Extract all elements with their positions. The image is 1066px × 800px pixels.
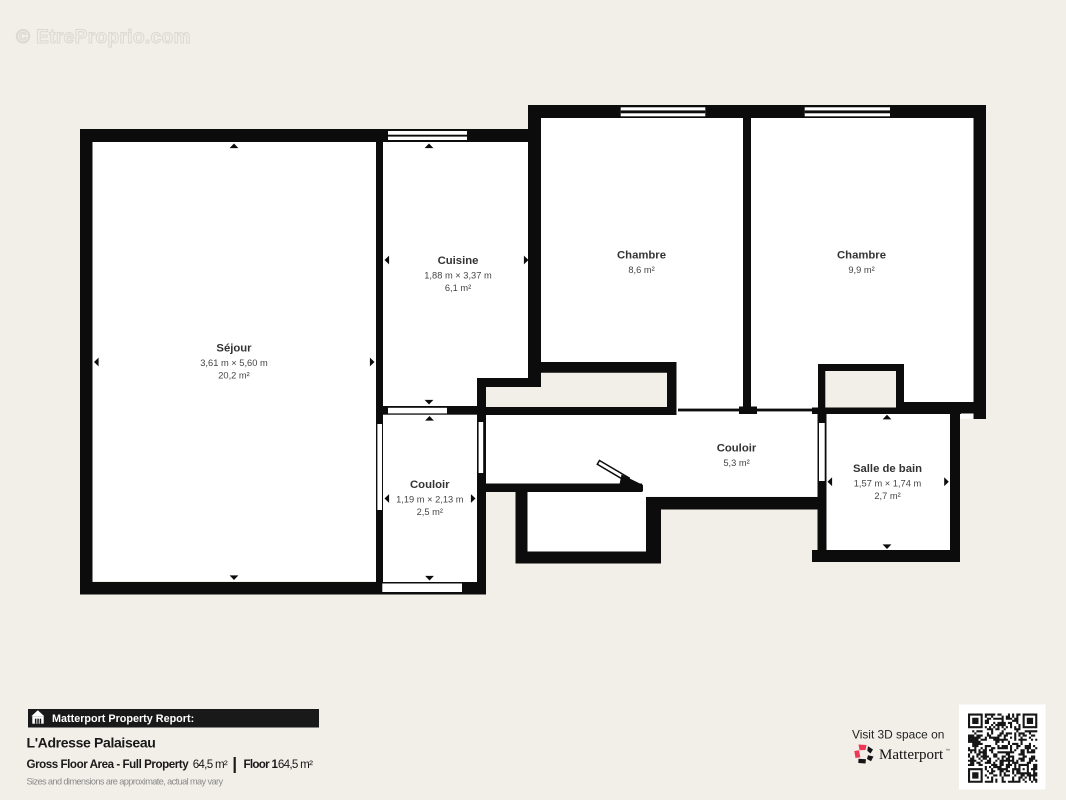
svg-text:Gross Floor Area - Full Proper: Gross Floor Area - Full Property	[27, 758, 190, 771]
svg-text:1,57 m × 1,74 m: 1,57 m × 1,74 m	[854, 479, 922, 489]
svg-text:Matterport Property Report:: Matterport Property Report:	[52, 713, 194, 725]
svg-text:6,1 m²: 6,1 m²	[445, 283, 471, 293]
svg-text:64,5 m²: 64,5 m²	[193, 758, 228, 771]
svg-text:20,2 m²: 20,2 m²	[218, 371, 250, 381]
svg-text:Cuisine: Cuisine	[438, 255, 479, 267]
svg-text:Matterport: Matterport	[879, 747, 944, 763]
svg-text:Séjour: Séjour	[216, 343, 252, 355]
svg-text:Couloir: Couloir	[410, 479, 450, 491]
svg-text:Visit 3D space on: Visit 3D space on	[852, 728, 944, 742]
svg-text:Salle de bain: Salle de bain	[853, 463, 922, 475]
svg-text:1,88 m × 3,37 m: 1,88 m × 3,37 m	[424, 271, 492, 281]
svg-text:8,6 m²: 8,6 m²	[628, 265, 654, 275]
svg-text:© EtreProprio.com: © EtreProprio.com	[16, 27, 191, 48]
svg-text:2,5 m²: 2,5 m²	[417, 507, 443, 517]
svg-text:2,7 m²: 2,7 m²	[874, 491, 900, 501]
svg-text:Floor 1: Floor 1	[244, 758, 279, 771]
svg-text:3,61 m × 5,60 m: 3,61 m × 5,60 m	[200, 358, 268, 368]
svg-text:Sizes and dimensions are appro: Sizes and dimensions are approximate, ac…	[27, 777, 224, 787]
svg-text:64,5 m²: 64,5 m²	[278, 758, 313, 771]
svg-text:Chambre: Chambre	[617, 250, 666, 262]
svg-text:L'Adresse Palaiseau: L'Adresse Palaiseau	[27, 735, 156, 751]
svg-text:1,19 m × 2,13 m: 1,19 m × 2,13 m	[396, 495, 464, 505]
svg-text:™: ™	[946, 748, 951, 753]
svg-text:Chambre: Chambre	[837, 250, 886, 262]
svg-text:5,3 m²: 5,3 m²	[723, 458, 749, 468]
svg-text:9,9 m²: 9,9 m²	[848, 265, 874, 275]
svg-text:Couloir: Couloir	[717, 443, 757, 455]
